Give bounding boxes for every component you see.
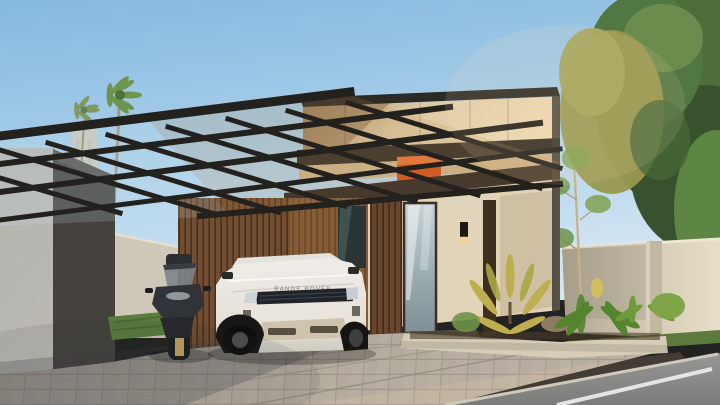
wall-sconce	[460, 222, 468, 237]
perimeter-wall	[562, 239, 720, 340]
wheel-rim-right	[349, 329, 363, 347]
mirror-left	[222, 272, 233, 279]
glass-door	[404, 203, 436, 333]
headlight-right	[346, 287, 358, 300]
mirror-right	[348, 267, 359, 274]
render-image: RANGE ROVER	[0, 0, 720, 405]
headlight	[166, 292, 190, 300]
fairing	[152, 284, 204, 318]
scene-canvas: RANGE ROVER	[0, 0, 720, 405]
